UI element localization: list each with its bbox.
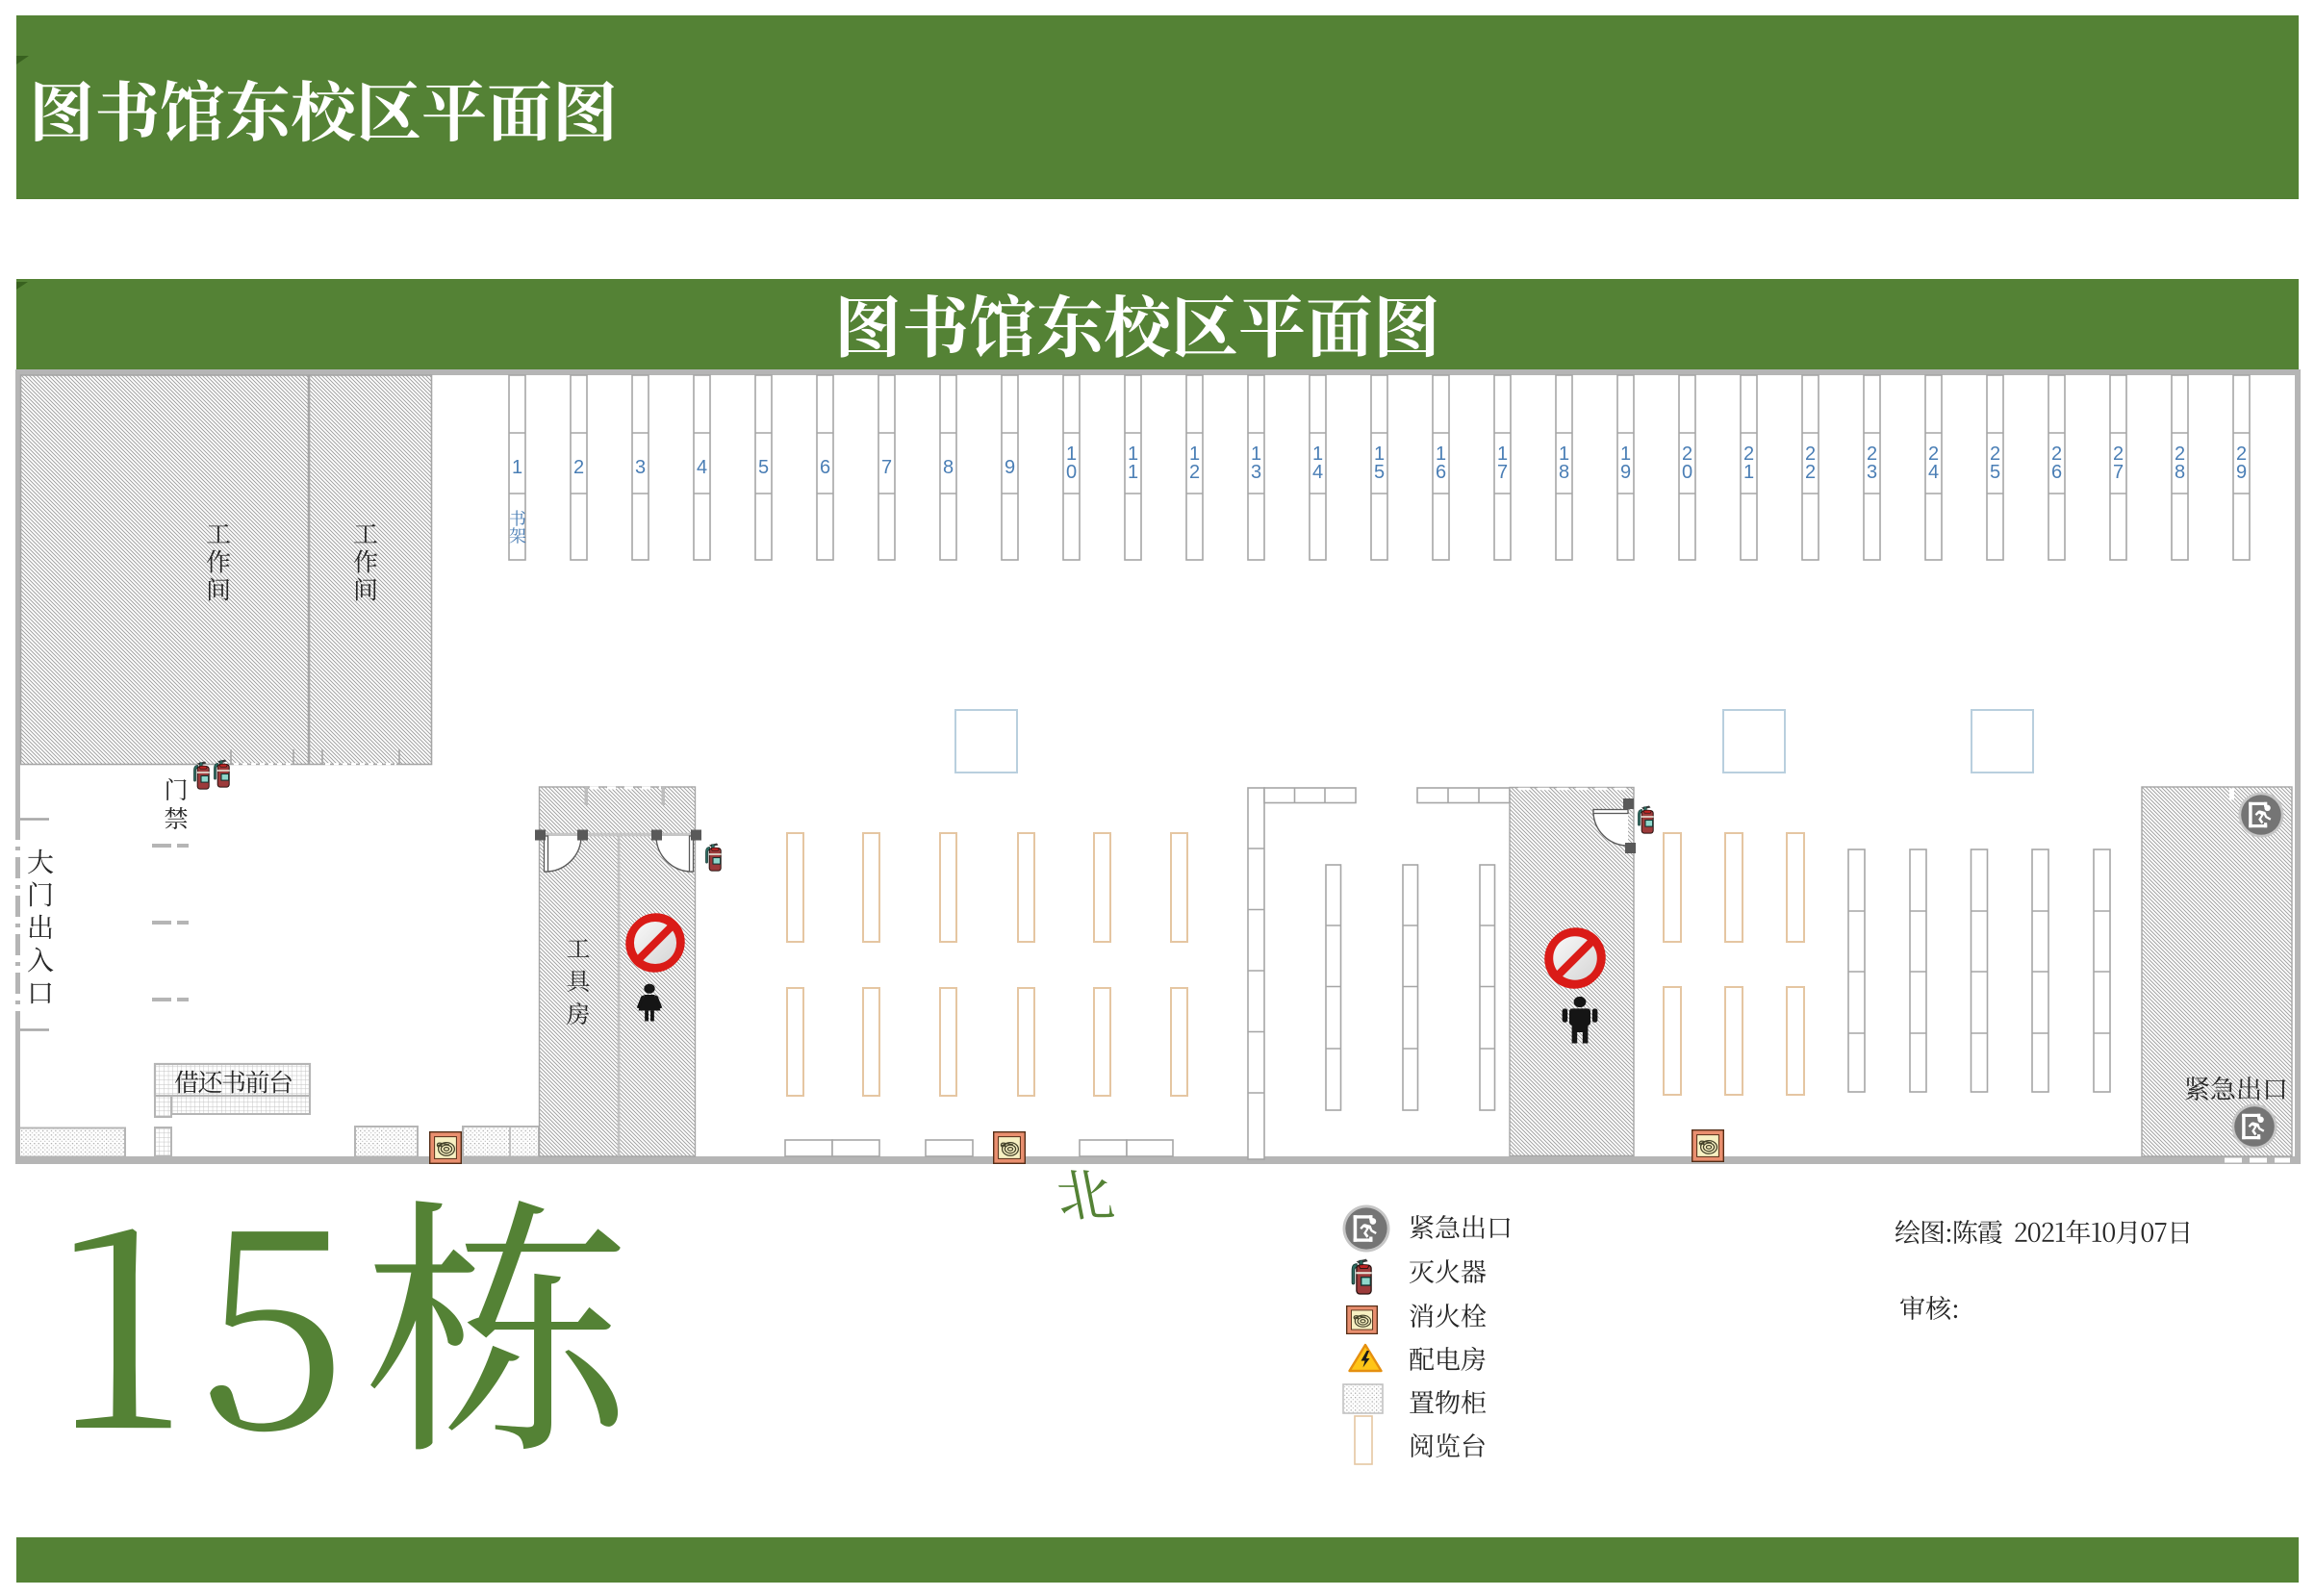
svg-text:8: 8 <box>1559 462 1569 483</box>
svg-text:7: 7 <box>881 457 892 478</box>
svg-text:2: 2 <box>1805 462 1816 483</box>
svg-text:9: 9 <box>1005 457 1015 478</box>
svg-text:1: 1 <box>1743 462 1754 483</box>
svg-text:9: 9 <box>1620 462 1631 483</box>
svg-text:1: 1 <box>1128 462 1138 483</box>
svg-text:7: 7 <box>2113 462 2124 483</box>
svg-text:5: 5 <box>1990 462 2000 483</box>
svg-text:4: 4 <box>1312 462 1323 483</box>
svg-text:7: 7 <box>1497 462 1508 483</box>
svg-text:8: 8 <box>943 457 954 478</box>
svg-text:8: 8 <box>2175 462 2185 483</box>
svg-text:2: 2 <box>1189 462 1200 483</box>
svg-text:1: 1 <box>512 457 522 478</box>
svg-text:6: 6 <box>1436 462 1446 483</box>
svg-text:0: 0 <box>1066 462 1077 483</box>
svg-text:6: 6 <box>820 457 830 478</box>
svg-text:2: 2 <box>573 457 584 478</box>
svg-text:9: 9 <box>2236 462 2247 483</box>
svg-text:4: 4 <box>1928 462 1939 483</box>
svg-text:3: 3 <box>1867 462 1877 483</box>
svg-text:0: 0 <box>1682 462 1692 483</box>
svg-text:6: 6 <box>2051 462 2062 483</box>
svg-text:3: 3 <box>1251 462 1261 483</box>
svg-text:5: 5 <box>1374 462 1385 483</box>
svg-text:3: 3 <box>635 457 646 478</box>
svg-text:4: 4 <box>697 457 707 478</box>
svg-text:5: 5 <box>758 457 769 478</box>
